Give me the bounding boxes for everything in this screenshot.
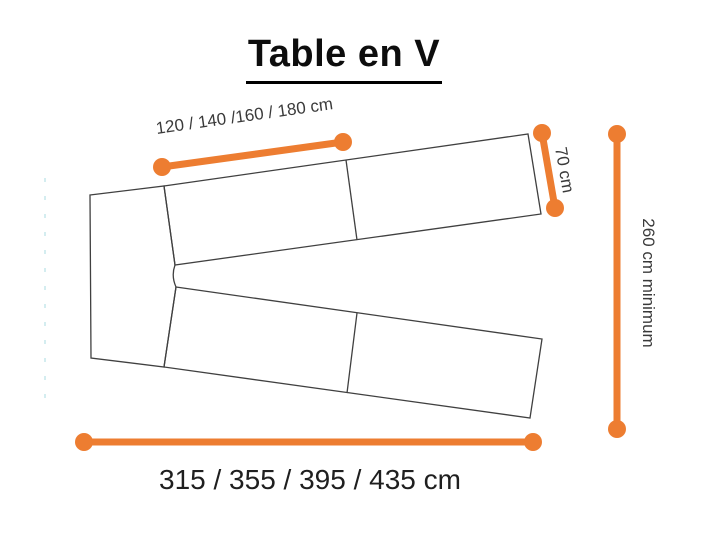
dimension-endpoint-dot [75, 433, 93, 451]
dimension-line-segment-length-bar [162, 142, 343, 167]
dimension-endpoint-dot [524, 433, 542, 451]
dimension-line-height-min [608, 125, 626, 438]
dimension-line-segment-length [153, 133, 352, 176]
table-lower-arm-divider [347, 313, 357, 393]
dimension-line-total-width [75, 433, 542, 451]
dimension-endpoint-dot [334, 133, 352, 151]
dimension-endpoint-dot [546, 199, 564, 217]
dimension-endpoint-dot [608, 125, 626, 143]
dimension-label-total-width: 315 / 355 / 395 / 435 cm [120, 464, 500, 496]
table-upper-arm-divider [346, 160, 357, 240]
dimension-endpoint-dot [608, 420, 626, 438]
table-lower-arm [164, 287, 542, 418]
table-upper-arm [164, 134, 541, 265]
table-left-panel [90, 186, 176, 367]
dimension-endpoint-dot [533, 124, 551, 142]
table-en-v-diagram: Table en V [0, 0, 717, 550]
dimension-label-height-min: 260 cm minimum [638, 213, 658, 353]
dimension-endpoint-dot [153, 158, 171, 176]
